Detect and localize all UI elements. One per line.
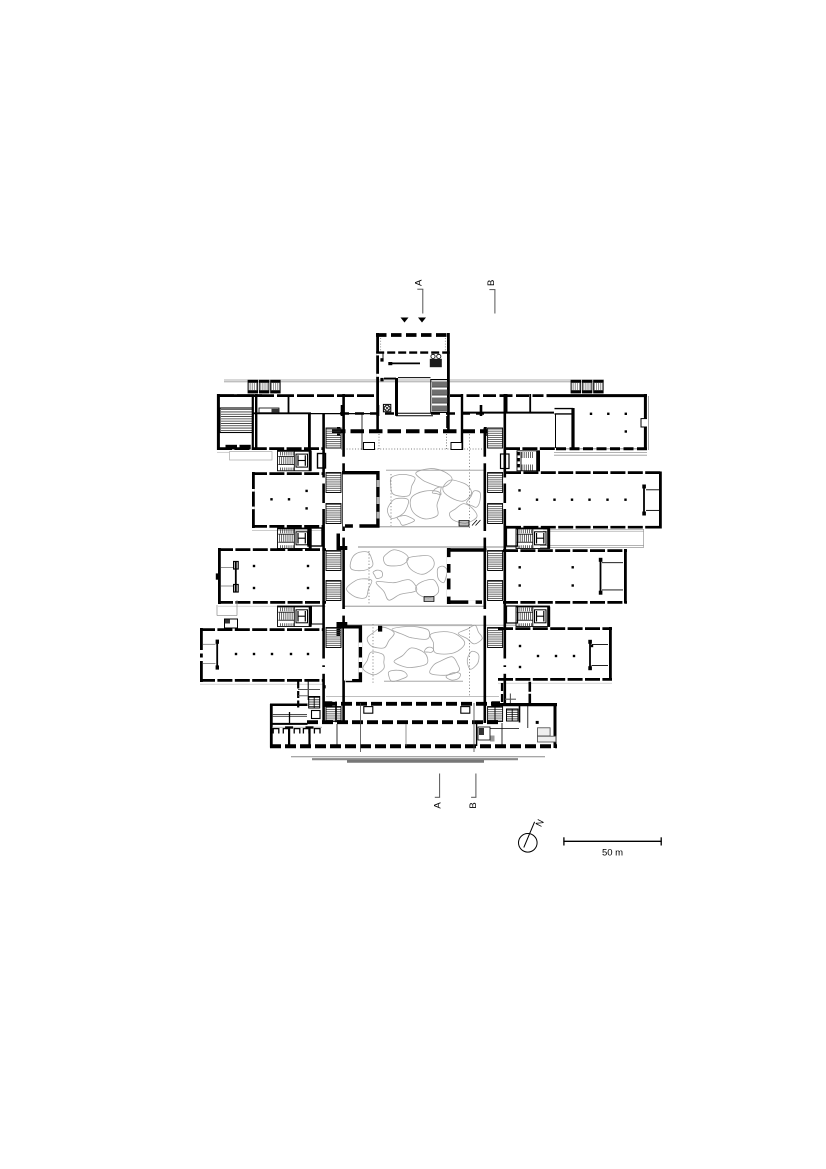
svg-text:B: B — [468, 802, 479, 808]
svg-text:A: A — [432, 802, 443, 809]
svg-text:N: N — [534, 818, 547, 829]
svg-text:B: B — [486, 280, 497, 286]
svg-text:A: A — [414, 279, 425, 286]
svg-text:50 m: 50 m — [602, 848, 623, 859]
